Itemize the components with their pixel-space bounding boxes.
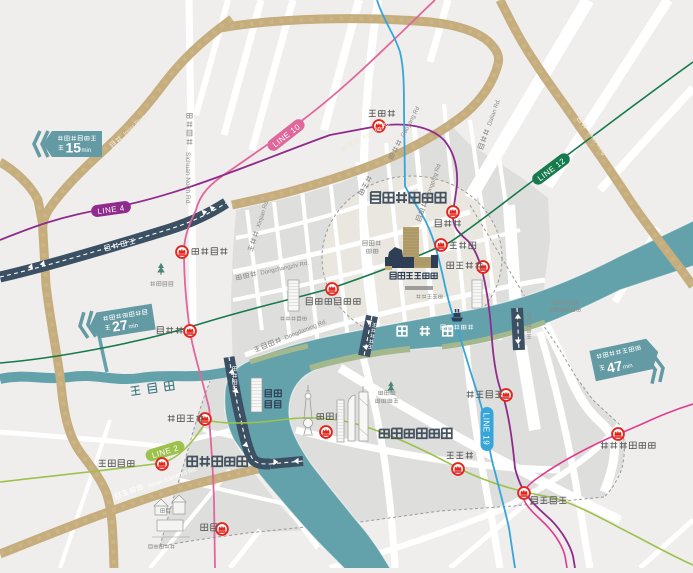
svg-text:min: min — [82, 148, 92, 154]
svg-text:15: 15 — [66, 140, 82, 156]
svg-text:27: 27 — [111, 316, 129, 334]
svg-text:LINE 19: LINE 19 — [481, 413, 490, 445]
svg-text:Sichuan North Rd.: Sichuan North Rd. — [184, 152, 191, 205]
